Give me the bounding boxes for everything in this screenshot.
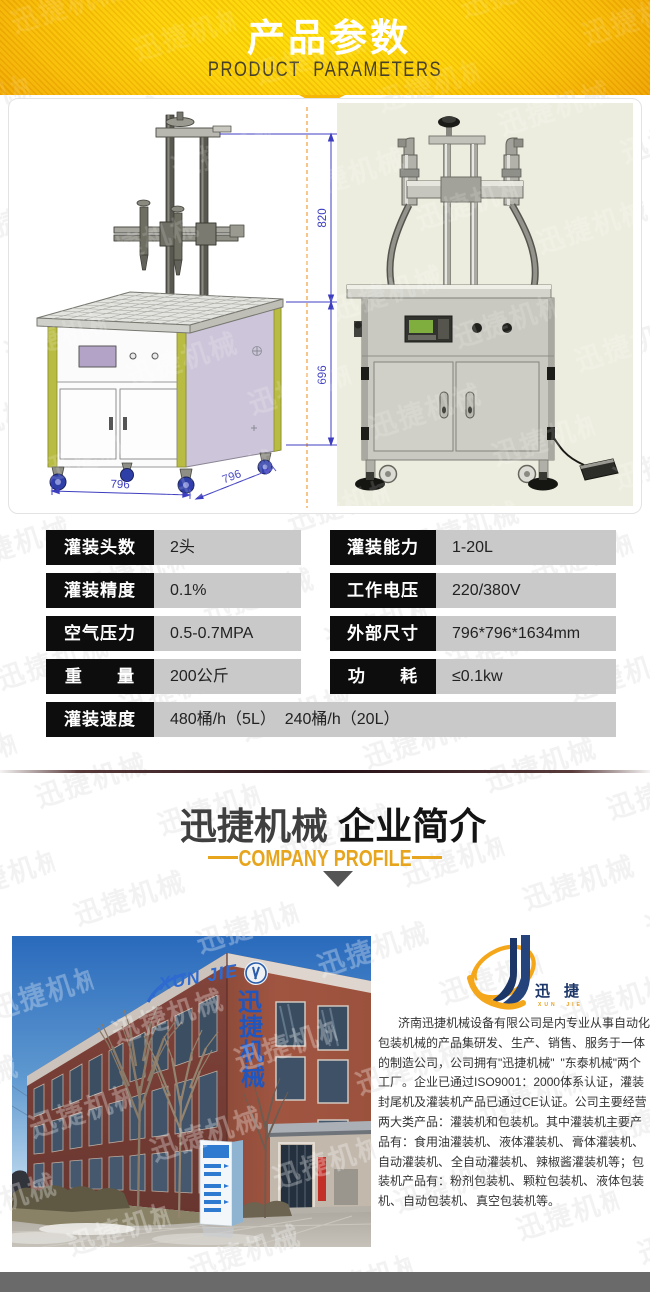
svg-text:迅: 迅: [238, 989, 262, 1016]
svg-text:XUN JIE: XUN JIE: [538, 1002, 583, 1008]
svg-text:696: 696: [317, 365, 329, 384]
svg-text:捷: 捷: [239, 1014, 263, 1041]
svg-text:械: 械: [241, 1064, 265, 1091]
svg-text:796: 796: [221, 468, 243, 486]
svg-text:796: 796: [110, 479, 130, 492]
svg-text:机: 机: [240, 1039, 264, 1066]
svg-text:迅捷: 迅捷: [535, 982, 593, 1000]
svg-text:820: 820: [317, 208, 329, 227]
